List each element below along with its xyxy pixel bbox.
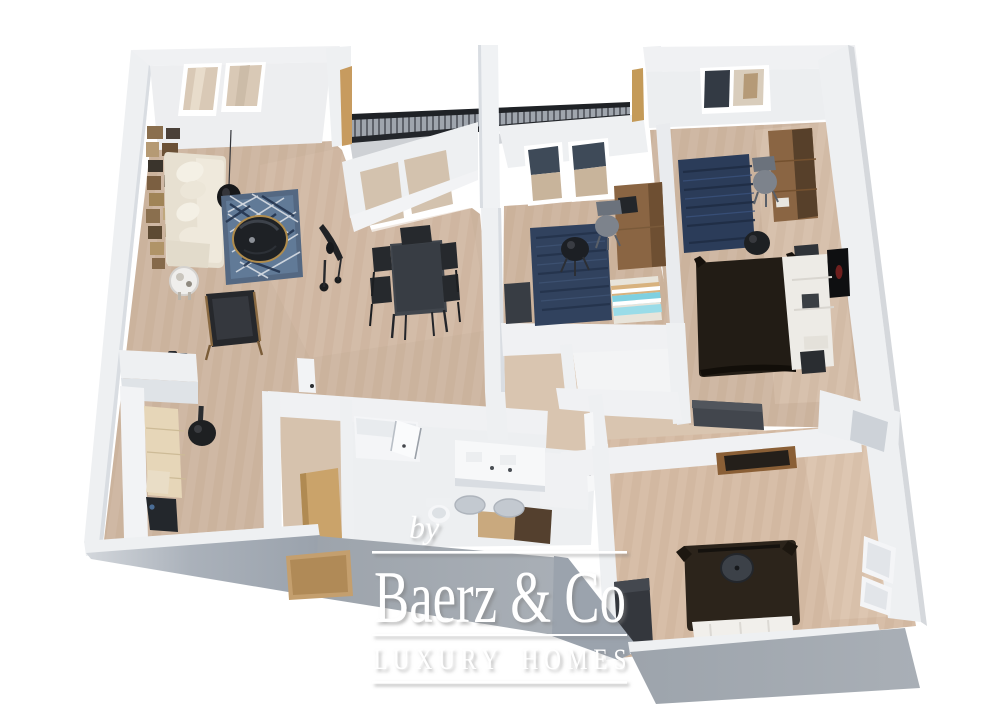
svg-text:by: by — [409, 509, 440, 545]
svg-text:L U X U R Y H O M E S: L U X U R Y H O M E S — [374, 643, 627, 676]
svg-text:Baerz & Co: Baerz & Co — [374, 557, 626, 639]
